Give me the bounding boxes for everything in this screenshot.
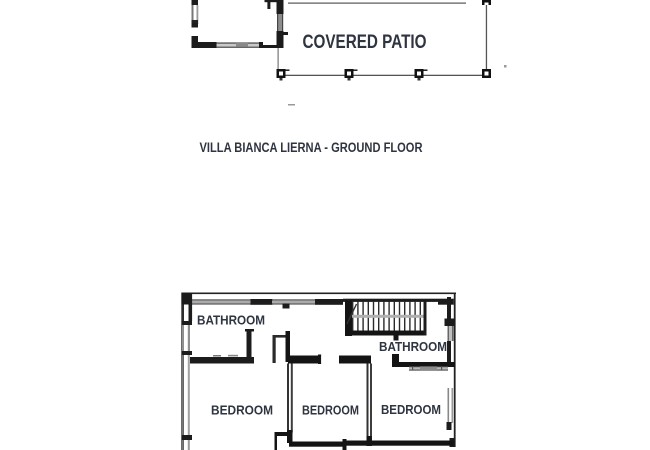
svg-text:BEDROOM: BEDROOM [211,403,273,418]
svg-text:VILLA BIANCA LIERNA - GROUND F: VILLA BIANCA LIERNA - GROUND FLOOR [200,140,423,156]
svg-text:BEDROOM: BEDROOM [381,402,441,417]
svg-text:BEDROOM: BEDROOM [302,403,359,418]
svg-text:BATHROOM: BATHROOM [379,339,447,354]
svg-text:COVERED PATIO: COVERED PATIO [303,31,427,53]
svg-text:BATHROOM: BATHROOM [197,313,265,328]
